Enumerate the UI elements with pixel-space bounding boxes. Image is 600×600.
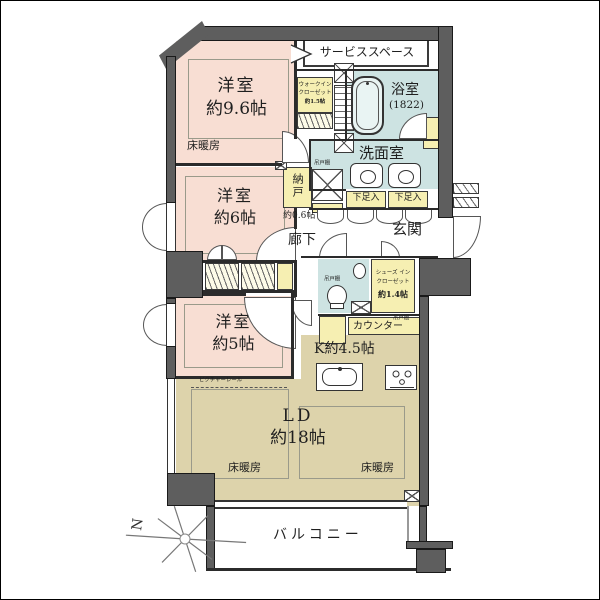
sink-icon <box>388 163 421 188</box>
picture-rail-label: ピクチャーレール <box>199 378 242 384</box>
picture-rail-line <box>191 387 287 388</box>
floor-heating-label: 床暖房 <box>228 462 261 474</box>
ld-label: LD <box>276 407 320 426</box>
compass-icon: N <box>119 499 259 585</box>
ld-size-label: 約18帖 <box>253 429 343 448</box>
balcony-label: バルコニー <box>273 528 363 543</box>
window <box>167 379 175 473</box>
closet-side <box>277 263 293 290</box>
cabinet-door-arc <box>317 210 344 224</box>
kitchen-cabinet <box>319 316 346 344</box>
outer-wall-left <box>166 298 176 304</box>
closet-wall <box>203 260 297 263</box>
closet-hanger-strip <box>297 113 333 129</box>
washroom-label: 洗面室 <box>359 145 404 162</box>
entrance-label: 玄関 <box>392 221 422 238</box>
room3-size: 約5帖 <box>176 335 291 353</box>
window <box>166 203 176 251</box>
casement-arc <box>142 227 167 251</box>
room2-size: 約6帖 <box>176 209 294 227</box>
wall <box>176 163 282 166</box>
cabinet-door-arc <box>347 210 374 224</box>
toilet-sink-icon <box>353 263 366 279</box>
room1-size: 約9.6帖 <box>176 100 297 119</box>
wall <box>291 293 294 378</box>
outer-wall-right <box>419 296 429 506</box>
outer-wall-right <box>438 26 453 218</box>
corridor-label: 廊下 <box>288 233 316 248</box>
washroom-wall <box>309 189 346 191</box>
shoe-cabinet-label: 下足入 <box>346 194 386 204</box>
balcony-divider <box>407 506 409 541</box>
sink-icon <box>350 163 383 188</box>
compass-north-label: N <box>129 517 147 531</box>
balcony-wall-right <box>419 506 427 544</box>
vent-louver <box>453 183 479 194</box>
balcony-wall-right <box>416 549 446 573</box>
hall-door-arc <box>319 233 347 258</box>
floor-plan: サービススペース ウォークイン クローゼット 約1.5帖 浴室 (1822) 洗… <box>0 0 600 600</box>
stove-icon <box>385 365 417 390</box>
room3-label: 洋室 <box>176 313 291 331</box>
closet-hanger <box>241 263 275 290</box>
hanging-cupboard-label: 吊戸棚 <box>314 161 330 167</box>
service-space-label: サービススペース <box>307 46 427 59</box>
storage-label: 納戸 <box>291 173 303 199</box>
casement-arc <box>143 325 167 346</box>
casement-arc <box>142 203 167 227</box>
kitchen-label: K約4.5帖 <box>314 342 375 357</box>
hanging-cupboard-box <box>334 133 354 153</box>
shoe-cabinet-label: 下足入 <box>388 194 428 204</box>
service-door-mark-icon <box>288 43 314 65</box>
washer-space <box>312 169 343 201</box>
outer-wall-left <box>166 346 176 379</box>
closet-hanger <box>205 263 239 290</box>
bathroom-size: (1822) <box>389 100 424 112</box>
genkan-step-wall <box>309 208 438 210</box>
outer-wall-left <box>166 251 203 298</box>
room1-label: 洋室 <box>176 77 297 96</box>
faucet-dot <box>338 367 342 371</box>
wall <box>309 141 311 189</box>
hanging-cupboard-label: 吊戸棚 <box>324 277 340 283</box>
outer-wall-jut <box>419 258 471 296</box>
walk-in-closet-label: ウォークイン クローゼット 約1.5帖 <box>297 81 333 106</box>
counter-label: カウンター <box>353 321 403 332</box>
wall <box>309 139 438 141</box>
shoes-in-closet-label: シューズ イン クローゼット 約1.4帖 <box>371 269 415 301</box>
entrance-door-arc <box>453 216 481 258</box>
vent-louver <box>453 197 479 208</box>
hanging-cupboard-label: 吊戸棚 <box>393 316 409 322</box>
bath-drain-dot <box>366 82 369 85</box>
floor-heating-label: 床暖房 <box>361 462 394 474</box>
outer-wall-top <box>199 26 453 41</box>
casement-arc <box>143 304 167 325</box>
balcony-wall-right <box>406 541 453 549</box>
hanging-cupboard-box <box>334 63 354 83</box>
bathroom-label: 浴室 <box>391 83 419 98</box>
room2-label: 洋室 <box>176 187 294 205</box>
window <box>166 304 176 346</box>
wall <box>345 71 347 139</box>
outer-wall-left <box>166 56 176 203</box>
wall <box>294 261 297 297</box>
toilet-base <box>330 303 344 309</box>
storage-size-label: 約0.6帖 <box>283 212 315 222</box>
floor-heating-label: 床暖房 <box>187 140 220 152</box>
wall <box>301 256 438 258</box>
toilet-cupboard <box>351 301 371 314</box>
wall <box>297 69 453 71</box>
